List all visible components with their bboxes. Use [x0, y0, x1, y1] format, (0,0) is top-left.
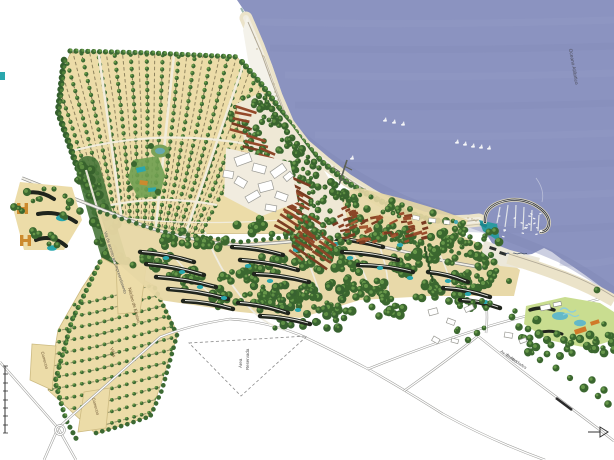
- svg-text:Área: Área: [238, 358, 243, 368]
- svg-text:Reservada: Reservada: [245, 348, 250, 370]
